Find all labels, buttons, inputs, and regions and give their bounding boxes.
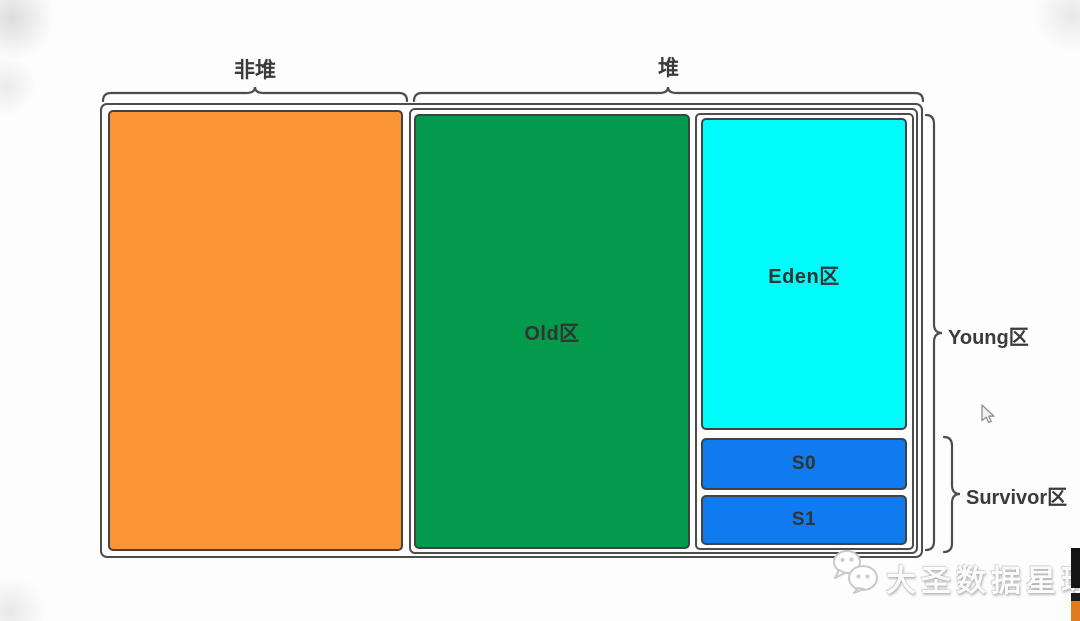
screen-edge-artifact [1071, 548, 1080, 588]
wechat-icon [830, 548, 882, 594]
s1-block: S1 [701, 495, 907, 545]
watermark-text: 大圣数据星球 [886, 556, 1080, 600]
young-region-label: Young区 [948, 321, 1029, 350]
s0-label: S0 [792, 453, 816, 475]
eden-block: Eden区 [701, 118, 907, 430]
mouse-cursor-icon [980, 404, 997, 425]
s1-label: S1 [792, 509, 816, 531]
survivor-region-label: Survivor区 [966, 481, 1067, 510]
non-heap-label: 非堆 [102, 54, 408, 84]
old-gen-label: Old区 [524, 317, 579, 346]
screen-edge-artifact [1071, 601, 1080, 621]
s0-block: S0 [701, 438, 907, 490]
young-brace [925, 114, 943, 552]
old-gen-block: Old区 [414, 114, 690, 549]
non-heap-block [108, 110, 403, 551]
heap-brace [413, 86, 924, 103]
survivor-brace [943, 436, 961, 554]
jvm-memory-diagram: 非堆 堆 Old区 Eden区 S0 S1 Young区 Survivor区 [0, 0, 1080, 621]
screen-edge-artifact [1071, 593, 1080, 601]
eden-label: Eden区 [768, 260, 839, 289]
heap-label: 堆 [413, 52, 924, 82]
non-heap-brace [102, 86, 408, 103]
